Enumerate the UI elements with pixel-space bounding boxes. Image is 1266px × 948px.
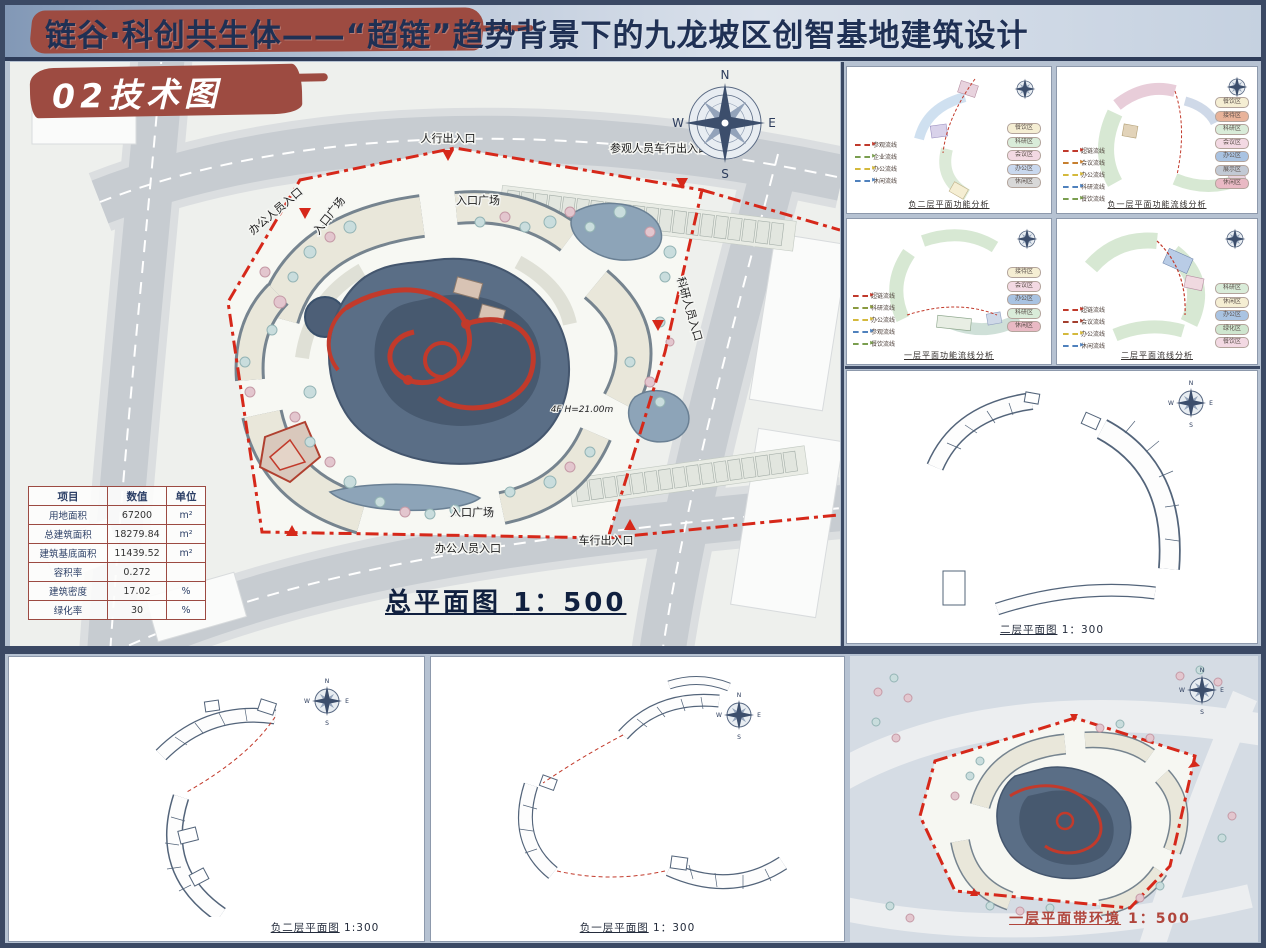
- compass-n: N: [1200, 667, 1205, 674]
- flow-label: 参观流线: [871, 327, 895, 336]
- right-horizontal-divider: [845, 366, 1260, 369]
- zone-chip: 办公区: [1215, 310, 1249, 321]
- env-plan-caption: 一层平面带环境 1：500: [1009, 908, 1191, 928]
- section-brush-stroke: 02技术图: [30, 64, 303, 119]
- flow-item: 超链流线: [853, 291, 895, 300]
- compass-w: W: [304, 698, 310, 705]
- second-floor-drawing: N E S W: [847, 371, 1257, 621]
- analysis-panel-b1: 超链流线 会议流线 办公流线 科研流线 餐饮流线 餐饮区 接待区 科研区 会议区…: [1056, 66, 1258, 214]
- flow-item: 休闲流线: [1063, 341, 1105, 350]
- flow-item: 餐饮流线: [1063, 194, 1105, 203]
- flow-item: 办公流线: [1063, 329, 1105, 338]
- zone-chip: 办公区: [1007, 164, 1041, 175]
- env-site-plan-panel: N E S W 一层平面带环境 1：500: [850, 656, 1258, 942]
- cell-item: 建筑密度: [29, 582, 108, 601]
- table-row: 用地面积67200m²: [29, 506, 206, 525]
- analysis-caption: 一层平面功能流线分析: [904, 350, 994, 361]
- presentation-board: 链谷·科创共生体——“超链”趋势背景下的九龙坡区创智基地建筑设计 02技术图: [0, 0, 1266, 948]
- compass-w: W: [1179, 687, 1185, 694]
- b2-floor-plan-panel: N E S W 负二层平面图 1:300: [8, 656, 425, 942]
- analysis-caption: 负二层平面功能分析: [909, 199, 990, 210]
- table-row: 建筑基底面积11439.52m²: [29, 544, 206, 563]
- caption-scale: 1:300: [344, 922, 379, 934]
- site-plan-caption-text: 总平面图: [385, 588, 501, 618]
- flow-legend: 参观流线 企业流线 办公流线 休闲流线: [855, 140, 897, 185]
- compass-mini: [1227, 77, 1248, 98]
- cell-value: 11439.52: [108, 544, 167, 563]
- compass-e: E: [1220, 687, 1224, 694]
- compass-s: S: [325, 720, 329, 727]
- b2-floor-drawing: N E S W: [9, 657, 424, 917]
- flow-item: 参观流线: [855, 140, 897, 149]
- flow-legend: 超链流线 会议流线 办公流线 科研流线 餐饮流线: [1063, 146, 1105, 203]
- compass-mini: [1015, 79, 1036, 100]
- flow-item: 休闲流线: [855, 176, 897, 185]
- compass-e: E: [1209, 400, 1213, 407]
- flow-label: 休闲流线: [873, 176, 897, 185]
- cell-value: 30: [108, 601, 167, 620]
- flow-arrow-icon: [853, 331, 868, 333]
- central-building: [329, 259, 569, 464]
- table-row: 绿化率30%: [29, 601, 206, 620]
- second-floor-caption: 二层平面图 1：300: [1000, 622, 1104, 637]
- flow-label: 超链流线: [1081, 146, 1105, 155]
- metrics-table: 项目 数值 单位 用地面积67200m² 总建筑面积18279.84m² 建筑基…: [28, 486, 206, 620]
- cell-unit: [167, 563, 206, 582]
- flow-arrow-icon: [853, 319, 868, 321]
- flow-label: 超链流线: [1081, 305, 1105, 314]
- flow-arrow-icon: [855, 168, 870, 170]
- metrics-header-unit: 单位: [167, 487, 206, 506]
- zone-legend: 餐饮区 接待区 科研区 会议区 办公区 展示区 休闲区: [1215, 97, 1249, 189]
- flow-arrow-icon: [1063, 345, 1078, 347]
- cell-value: 0.272: [108, 563, 167, 582]
- b1-floor-plan-panel: N E S W 负一层平面图 1：300: [430, 656, 845, 942]
- zone-chip: 休闲区: [1007, 177, 1041, 188]
- compass-e: E: [757, 712, 761, 719]
- flow-arrow-icon: [855, 144, 870, 146]
- flow-legend: 超链流线 会议流线 办公流线 休闲流线: [1063, 305, 1105, 350]
- cell-item: 建筑基底面积: [29, 544, 108, 563]
- flow-item: 企业流线: [855, 152, 897, 161]
- flow-item: 超链流线: [1063, 305, 1105, 314]
- compass-small: N E S W: [1168, 380, 1213, 429]
- flow-item: 办公流线: [1063, 170, 1105, 179]
- flow-label: 餐饮流线: [1081, 194, 1105, 203]
- compass-s: S: [1200, 709, 1204, 716]
- cell-item: 绿化率: [29, 601, 108, 620]
- flow-arrow-icon: [855, 156, 870, 158]
- compass-n: N: [1189, 380, 1194, 387]
- label-office-entry-bottom: 办公人员入口: [435, 542, 501, 555]
- second-floor-plan-panel: N E S W 二层平面图 1：300: [846, 370, 1258, 644]
- flow-label: 餐饮流线: [871, 339, 895, 348]
- flow-label: 办公流线: [1081, 329, 1105, 338]
- zone-chip: 展示区: [1215, 165, 1249, 176]
- flow-label: 会议流线: [1081, 317, 1105, 326]
- cell-unit: %: [167, 582, 206, 601]
- table-row: 建筑密度17.02%: [29, 582, 206, 601]
- label-vehicle-exit: 车行出入口: [579, 533, 634, 547]
- cell-unit: %: [167, 601, 206, 620]
- board-title-main: “超链”趋势背景下的九龙坡区创智基地建筑设计: [346, 18, 1029, 54]
- zone-chip: 休闲区: [1215, 297, 1249, 308]
- env-plan-drawing: N E S W: [850, 656, 1258, 942]
- flow-item: 会议流线: [1063, 158, 1105, 167]
- flow-item: 超链流线: [1063, 146, 1105, 155]
- table-row: 总建筑面积18279.84m²: [29, 525, 206, 544]
- cell-unit: m²: [167, 544, 206, 563]
- zone-chip: 接待区: [1215, 111, 1249, 122]
- flow-label: 会议流线: [1081, 158, 1105, 167]
- board-title-prefix: 链谷·科创共生体——: [45, 18, 346, 54]
- flow-arrow-icon: [1063, 198, 1078, 200]
- zone-legend: 科研区 休闲区 办公区 绿化区 餐饮区: [1215, 283, 1249, 348]
- right-vertical-divider: [841, 62, 844, 646]
- zone-chip: 科研区: [1215, 283, 1249, 294]
- flow-item: 办公流线: [853, 315, 895, 324]
- flow-label: 办公流线: [871, 315, 895, 324]
- flow-label: 休闲流线: [1081, 341, 1105, 350]
- flow-label: 科研流线: [1081, 182, 1105, 191]
- cell-value: 18279.84: [108, 525, 167, 544]
- flow-label: 办公流线: [1081, 170, 1105, 179]
- flow-arrow-icon: [1063, 174, 1078, 176]
- zone-chip: 会议区: [1007, 281, 1041, 292]
- title-banner: 链谷·科创共生体——“超链”趋势背景下的九龙坡区创智基地建筑设计: [5, 5, 1261, 61]
- flow-label: 企业流线: [873, 152, 897, 161]
- zone-chip: 餐饮区: [1215, 337, 1249, 348]
- flow-item: 餐饮流线: [853, 339, 895, 348]
- b2-floor-caption: 负二层平面图 1:300: [271, 920, 380, 935]
- compass-e: E: [768, 116, 776, 130]
- compass-w: W: [716, 712, 722, 719]
- compass-mini: [1225, 229, 1246, 250]
- compass-s: S: [721, 167, 729, 181]
- analysis-caption: 负一层平面功能流线分析: [1108, 199, 1207, 210]
- label-plaza-bottom: 入口广场: [450, 505, 494, 519]
- main-horizontal-divider: [0, 646, 1266, 654]
- compass-n: N: [737, 692, 742, 699]
- zone-chip: 接待区: [1007, 267, 1041, 278]
- flow-arrow-icon: [1063, 186, 1078, 188]
- flow-arrow-icon: [1063, 321, 1078, 323]
- label-visitor-vehicle: 参观人员车行出入口: [610, 141, 709, 155]
- zone-chip: 科研区: [1007, 137, 1041, 148]
- flow-arrow-icon: [853, 295, 868, 297]
- caption-text: 负二层平面图: [271, 922, 340, 934]
- flow-arrow-icon: [1063, 150, 1078, 152]
- flow-legend: 超链流线 科研流线 办公流线 参观流线 餐饮流线: [853, 291, 895, 348]
- compass-small: N E S W: [716, 692, 761, 741]
- compass-n: N: [721, 68, 730, 82]
- compass-w: W: [1168, 400, 1174, 407]
- cell-unit: m²: [167, 525, 206, 544]
- zone-chip: 休闲区: [1215, 178, 1249, 189]
- analysis-panel-b2: 参观流线 企业流线 办公流线 休闲流线 餐饮区 科研区 会议区 办公区 休闲区 …: [846, 66, 1052, 214]
- zone-chip: 会议区: [1215, 138, 1249, 149]
- flow-label: 办公流线: [873, 164, 897, 173]
- flow-arrow-icon: [1063, 162, 1078, 164]
- caption-text: 二层平面图: [1000, 624, 1058, 636]
- zone-chip: 绿化区: [1215, 324, 1249, 335]
- label-ped-exit: 人行出入口: [421, 131, 476, 145]
- compass-e: E: [345, 698, 349, 705]
- cell-value: 17.02: [108, 582, 167, 601]
- compass-small: N E S W: [304, 678, 349, 727]
- cell-item: 用地面积: [29, 506, 108, 525]
- flow-arrow-icon: [853, 343, 868, 345]
- caption-text: 一层平面带环境: [1009, 911, 1121, 927]
- site-plan-caption: 总平面图 1：500: [385, 582, 626, 619]
- cell-value: 67200: [108, 506, 167, 525]
- metrics-header-value: 数值: [108, 487, 167, 506]
- flow-item: 参观流线: [853, 327, 895, 336]
- zone-chip: 办公区: [1215, 151, 1249, 162]
- zone-chip: 餐饮区: [1215, 97, 1249, 108]
- flow-label: 科研流线: [871, 303, 895, 312]
- flow-arrow-icon: [855, 180, 870, 182]
- zone-chip: 科研区: [1215, 124, 1249, 135]
- flow-item: 办公流线: [855, 164, 897, 173]
- cell-unit: m²: [167, 506, 206, 525]
- caption-scale: 1：300: [653, 922, 695, 934]
- flow-label: 超链流线: [871, 291, 895, 300]
- compass-s: S: [1189, 422, 1193, 429]
- label-height-note: 4F H=21.00m: [551, 405, 614, 415]
- caption-scale: 1：300: [1062, 624, 1104, 636]
- zone-chip: 办公区: [1007, 294, 1041, 305]
- section-title: 02技术图: [52, 67, 223, 118]
- caption-text: 负一层平面图: [580, 922, 649, 934]
- table-row: 容积率0.272: [29, 563, 206, 582]
- site-plan-scale: 1：500: [513, 588, 626, 618]
- zone-chip: 餐饮区: [1007, 123, 1041, 134]
- compass-s: S: [737, 734, 741, 741]
- label-plaza-top: 入口广场: [456, 193, 500, 207]
- analysis-panel-l2: 超链流线 会议流线 办公流线 休闲流线 科研区 休闲区 办公区 绿化区 餐饮区 …: [1056, 218, 1258, 365]
- cell-item: 总建筑面积: [29, 525, 108, 544]
- zone-chip: 休闲区: [1007, 321, 1041, 332]
- cell-item: 容积率: [29, 563, 108, 582]
- flow-label: 参观流线: [873, 140, 897, 149]
- flow-item: 科研流线: [853, 303, 895, 312]
- b1-floor-drawing: N E S W: [431, 657, 844, 919]
- caption-scale: 1：500: [1128, 911, 1191, 927]
- b1-floor-caption: 负一层平面图 1：300: [580, 920, 696, 935]
- zone-chip: 科研区: [1007, 308, 1041, 319]
- board-title: 链谷·科创共生体——“超链”趋势背景下的九龙坡区创智基地建筑设计: [45, 10, 1029, 55]
- analysis-caption: 二层平面流线分析: [1121, 350, 1193, 361]
- master-site-plan-panel: 人行出入口 参观人员车行出入口 办公人员入口 入口广场 入口广场 科研人员入口 …: [10, 62, 840, 646]
- zone-legend: 接待区 会议区 办公区 科研区 休闲区: [1007, 267, 1041, 332]
- flow-arrow-icon: [853, 307, 868, 309]
- flow-item: 科研流线: [1063, 182, 1105, 191]
- compass-n: N: [325, 678, 330, 685]
- zone-chip: 会议区: [1007, 150, 1041, 161]
- compass-mini: [1017, 229, 1038, 250]
- zone-legend: 餐饮区 科研区 会议区 办公区 休闲区: [1007, 123, 1041, 188]
- flow-arrow-icon: [1063, 309, 1078, 311]
- analysis-panel-l1: 超链流线 科研流线 办公流线 参观流线 餐饮流线 接待区 会议区 办公区 科研区…: [846, 218, 1052, 365]
- flow-arrow-icon: [1063, 333, 1078, 335]
- compass-w: W: [672, 116, 684, 130]
- metrics-header-item: 项目: [29, 487, 108, 506]
- flow-item: 会议流线: [1063, 317, 1105, 326]
